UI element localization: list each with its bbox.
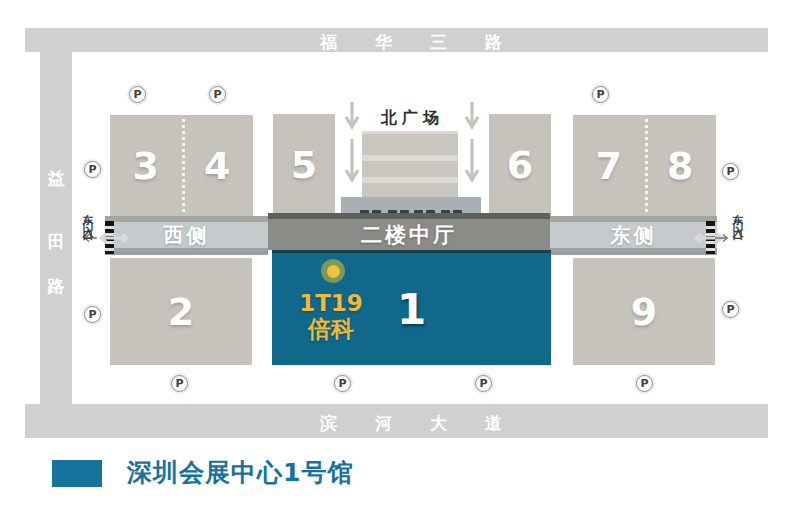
parking-icon: P bbox=[334, 375, 351, 392]
band-center: 二楼中厅 bbox=[268, 213, 550, 250]
road-yitian: 益 田 路 bbox=[40, 28, 72, 438]
road-fuhua-label: 福华三路 bbox=[320, 31, 540, 54]
hall-7: 7 bbox=[573, 115, 645, 216]
hall-6-number: 6 bbox=[507, 143, 533, 187]
stair-step bbox=[362, 155, 458, 161]
hall-7-number: 7 bbox=[596, 144, 622, 188]
road-binhe: 滨河大道 bbox=[25, 404, 768, 438]
parking-letter: P bbox=[479, 378, 487, 389]
parking-letter: P bbox=[640, 378, 648, 389]
band-east-label: 东侧 bbox=[611, 222, 657, 249]
parking-letter: P bbox=[133, 89, 141, 100]
hall-2: 2 bbox=[110, 258, 252, 365]
road-yitian-char-2: 田 bbox=[40, 230, 72, 253]
parking-icon: P bbox=[636, 375, 653, 392]
parking-icon: P bbox=[722, 301, 739, 318]
road-yitian-char-3: 路 bbox=[40, 275, 72, 298]
legend-swatch bbox=[52, 460, 102, 487]
hall-5: 5 bbox=[273, 114, 335, 216]
road-fuhua: 福华三路 bbox=[25, 28, 768, 52]
parking-letter: P bbox=[596, 89, 604, 100]
parking-letter: P bbox=[88, 309, 96, 320]
parking-icon: P bbox=[592, 86, 609, 103]
hall-8-number: 8 bbox=[667, 144, 693, 188]
band-edge bbox=[550, 248, 717, 255]
booth-marker-dot bbox=[327, 265, 340, 278]
parking-icon: P bbox=[84, 306, 101, 323]
hall-4-number: 4 bbox=[204, 144, 230, 188]
down-arrows-icon bbox=[464, 101, 480, 191]
booth-marker bbox=[321, 259, 345, 283]
hall-8: 8 bbox=[645, 115, 717, 216]
legend-label: 深圳会展中心1号馆 bbox=[127, 456, 353, 489]
parking-icon: P bbox=[84, 161, 101, 178]
hall-4: 4 bbox=[182, 115, 254, 216]
band-center-label: 二楼中厅 bbox=[361, 221, 457, 249]
hall-5-number: 5 bbox=[291, 143, 317, 187]
venue-map: 福华三路 益 田 路 滨河大道 3 4 5 6 7 8 bbox=[0, 0, 800, 509]
left-arrow-icon bbox=[82, 233, 98, 243]
parking-letter: P bbox=[726, 304, 734, 315]
road-yitian-char-1: 益 bbox=[40, 167, 72, 190]
hall-3: 3 bbox=[110, 115, 182, 216]
parking-icon: P bbox=[129, 86, 146, 103]
down-arrows-icon bbox=[344, 101, 360, 191]
booth-name: 倍科 bbox=[280, 316, 382, 342]
parking-icon: P bbox=[475, 375, 492, 392]
entrance-label-east: 东门入口 bbox=[729, 205, 744, 229]
stair-step bbox=[362, 177, 458, 183]
parking-icon: P bbox=[209, 86, 226, 103]
hall-divider bbox=[645, 119, 648, 212]
parking-letter: P bbox=[726, 166, 734, 177]
parking-letter: P bbox=[175, 378, 183, 389]
band-edge bbox=[105, 248, 268, 255]
road-binhe-label: 滨河大道 bbox=[320, 412, 540, 435]
north-plaza-label: 北广场 bbox=[381, 108, 444, 129]
hall-2-number: 2 bbox=[168, 290, 194, 334]
parking-icon: P bbox=[171, 375, 188, 392]
parking-letter: P bbox=[88, 164, 96, 175]
hall-3-number: 3 bbox=[133, 144, 159, 188]
parking-letter: P bbox=[213, 89, 221, 100]
band-west-label: 西侧 bbox=[164, 222, 210, 249]
hall-9-number: 9 bbox=[631, 290, 657, 334]
booth-label: 1T19 倍科 bbox=[280, 290, 382, 342]
hall-divider bbox=[182, 119, 185, 212]
north-plaza-stairs bbox=[362, 131, 458, 197]
parking-letter: P bbox=[338, 378, 346, 389]
double-arrow-icon bbox=[95, 232, 133, 244]
hall-6: 6 bbox=[489, 114, 551, 216]
parking-icon: P bbox=[722, 163, 739, 180]
hall-9: 9 bbox=[573, 258, 715, 365]
hall-3-4: 3 4 bbox=[110, 115, 253, 216]
booth-code: 1T19 bbox=[280, 290, 382, 316]
hall-7-8: 7 8 bbox=[573, 115, 716, 216]
right-arrow-icon bbox=[714, 233, 730, 243]
entrance-label-west: 东门入口 bbox=[79, 205, 94, 229]
hall-1-number: 1 bbox=[397, 285, 426, 334]
